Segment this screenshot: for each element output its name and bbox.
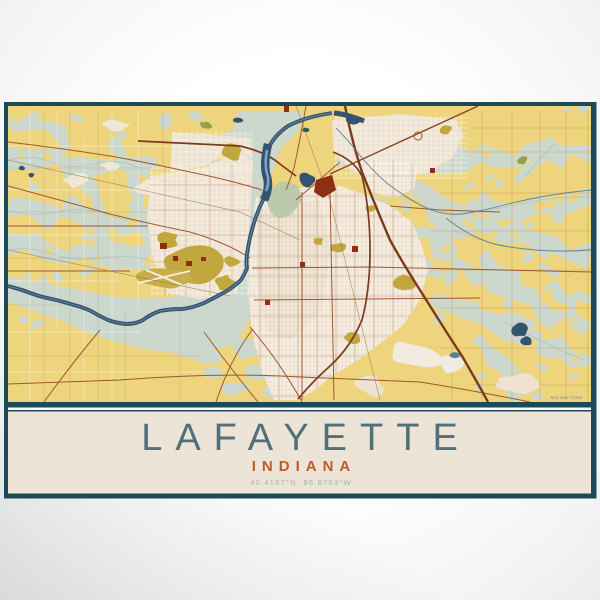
svg-text:Map data ©OSM: Map data ©OSM [551, 395, 583, 400]
svg-text:INDIANA: INDIANA [252, 458, 357, 475]
svg-text:40.4167°N, 86.8753°W: 40.4167°N, 86.8753°W [250, 478, 352, 487]
svg-text:LAFAYETTE: LAFAYETTE [141, 417, 471, 459]
